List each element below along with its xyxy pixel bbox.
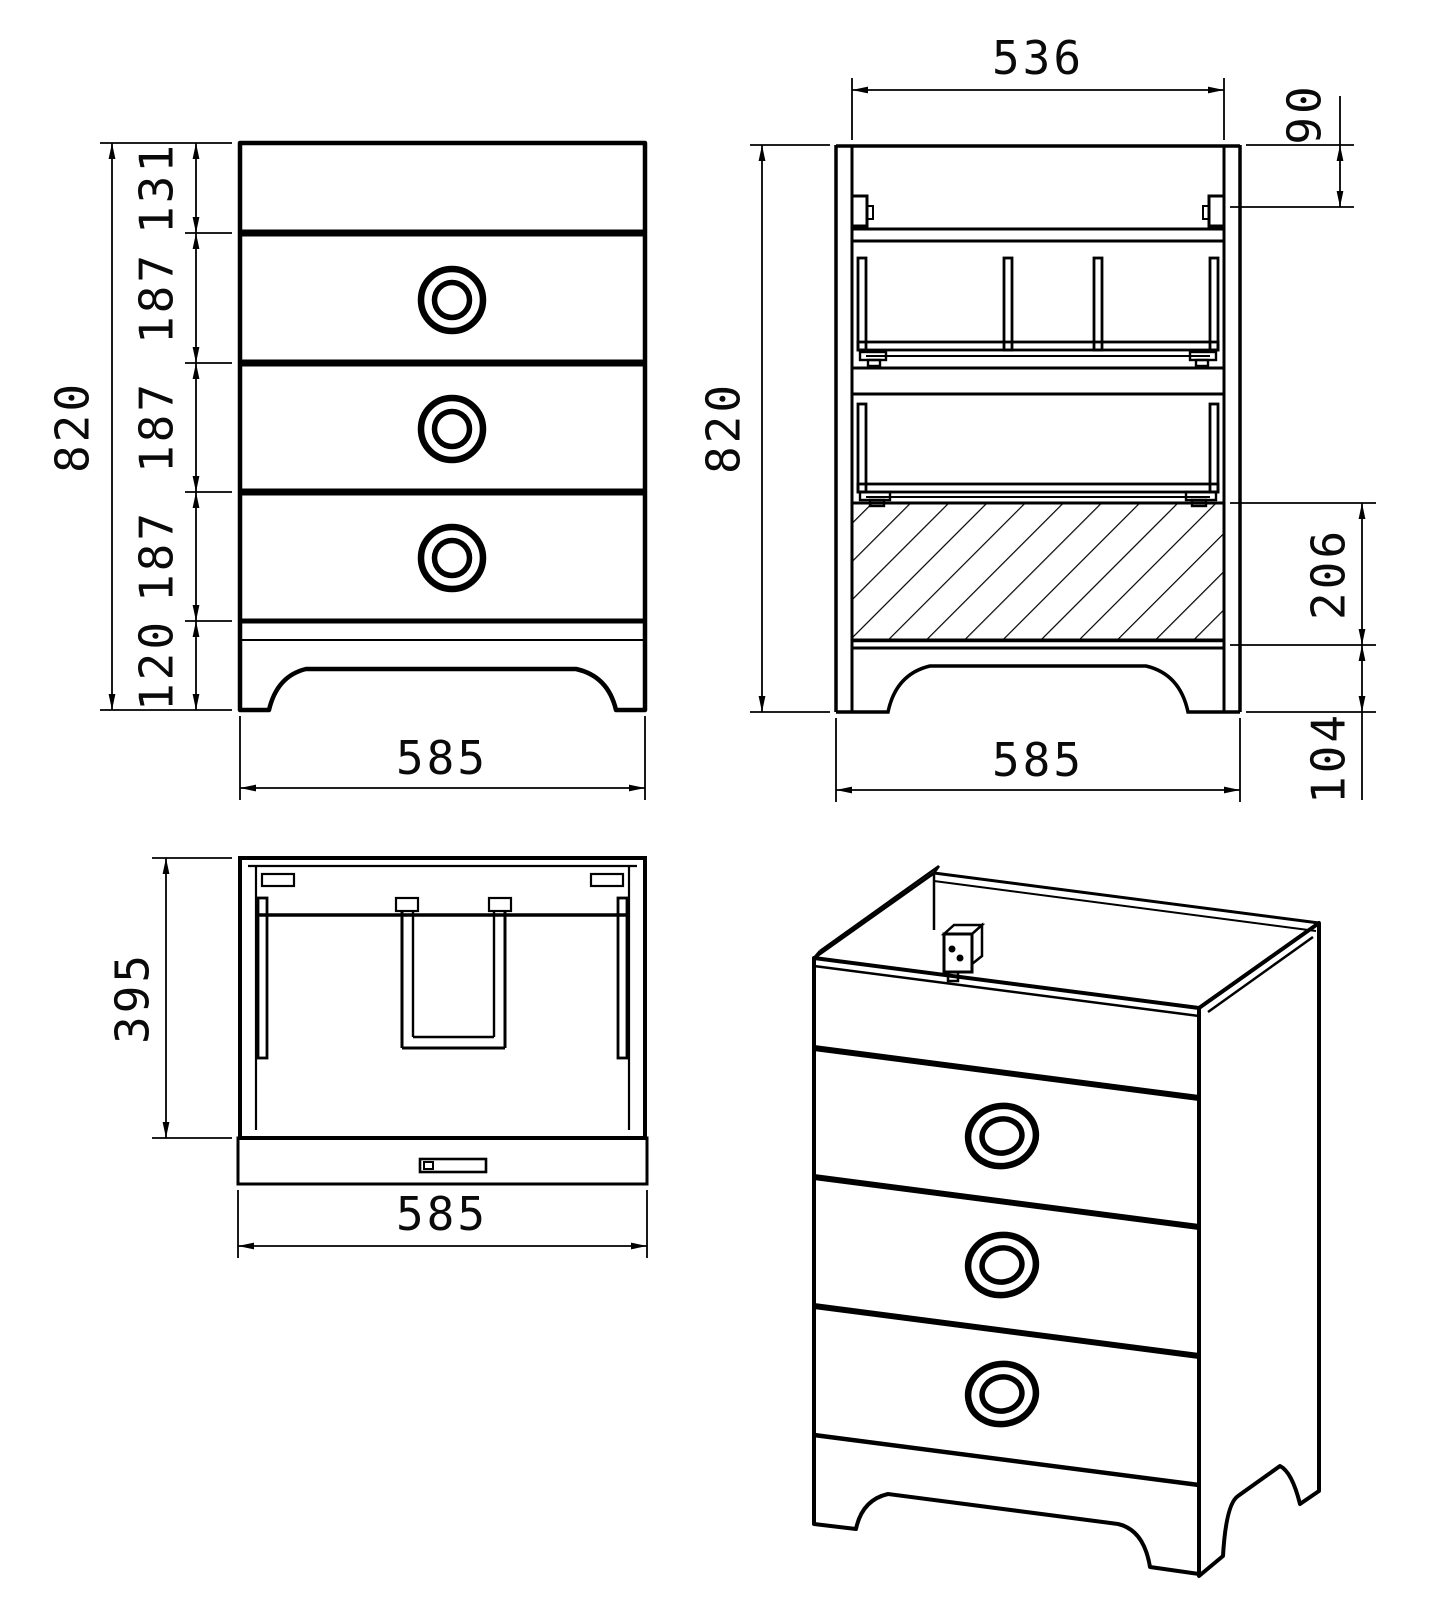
drawer-knob-icon <box>421 398 483 460</box>
drawer-slide-icon <box>868 360 880 366</box>
plumbing-cutout <box>396 898 511 1048</box>
section-drawer-front-hatch <box>852 503 1224 640</box>
section-dim-height <box>750 145 830 712</box>
iso-front-top-inner-edge <box>814 966 1199 1016</box>
top-right-rail <box>618 898 627 1058</box>
drawer-knob-icon <box>963 1359 1040 1430</box>
front-width-label: 585 <box>396 731 488 785</box>
front-dim-segments <box>185 143 232 710</box>
drawing-sheet: 820 131 187 187 187 120 585 <box>0 0 1443 1600</box>
sink-bracket-icon <box>944 925 982 981</box>
corner-bracket-icon <box>262 874 294 886</box>
iso-right-panel <box>1199 923 1319 1576</box>
section-dim-inner-width <box>852 78 1224 140</box>
front-cabinet-outline <box>240 143 645 710</box>
section-drawer1 <box>858 258 1218 366</box>
iso-divider-3 <box>814 1306 1199 1356</box>
top-dim-depth <box>152 858 232 1138</box>
front-seg-label-1: 131 <box>130 142 184 234</box>
iso-divider-2 <box>814 1177 1199 1227</box>
section-top-rail <box>852 229 1224 241</box>
iso-divider-4 <box>814 1435 1199 1485</box>
iso-left-panel-top <box>814 873 934 958</box>
iso-back-top-edge <box>934 873 1319 923</box>
section-inner-width-label: 536 <box>992 31 1084 85</box>
drawer-knob-icon <box>421 269 483 331</box>
section-plinth-label: 104 <box>1302 712 1356 804</box>
iso-left-panel-top-outer <box>820 866 939 951</box>
drawer-knob-icon <box>963 1230 1040 1301</box>
top-depth-label: 395 <box>106 952 160 1044</box>
iso-right-panel-top-inner <box>1208 937 1313 1012</box>
section-drawer-front-label: 206 <box>1302 528 1356 620</box>
top-view: 395 585 <box>106 858 648 1258</box>
front-height-label: 820 <box>46 381 100 473</box>
section-mid-rail <box>852 368 1224 394</box>
drawer-knob-icon <box>421 527 483 589</box>
front-seg-label-4: 187 <box>130 510 184 602</box>
corner-bracket-icon <box>591 874 623 886</box>
iso-front-face <box>814 958 1199 1574</box>
section-bracket-label: 90 <box>1278 83 1332 144</box>
section-view: 536 90 820 206 104 <box>697 31 1377 804</box>
drawer-slide-icon <box>1196 360 1208 366</box>
front-seg-label-5: 120 <box>130 619 184 711</box>
top-width-label: 585 <box>396 1187 488 1241</box>
front-seg-label-3: 187 <box>130 381 184 473</box>
top-handle <box>420 1159 486 1172</box>
sink-bracket-icon <box>1203 196 1224 226</box>
isometric-view <box>814 866 1319 1576</box>
section-height-label: 820 <box>697 382 751 474</box>
top-outline <box>240 858 645 1138</box>
section-plinth-arch <box>836 666 1240 712</box>
drawer-knob-icon <box>963 1101 1040 1172</box>
section-width-label: 585 <box>992 733 1084 787</box>
top-drawer-face <box>238 1138 647 1184</box>
section-drawer2 <box>858 404 1218 506</box>
sink-bracket-icon <box>852 196 873 226</box>
iso-back-top-inner-edge <box>934 881 1316 931</box>
front-seg-label-2: 187 <box>130 252 184 344</box>
iso-divider-1 <box>814 1048 1199 1098</box>
front-view: 820 131 187 187 187 120 585 <box>46 142 646 800</box>
top-left-rail <box>258 898 267 1058</box>
